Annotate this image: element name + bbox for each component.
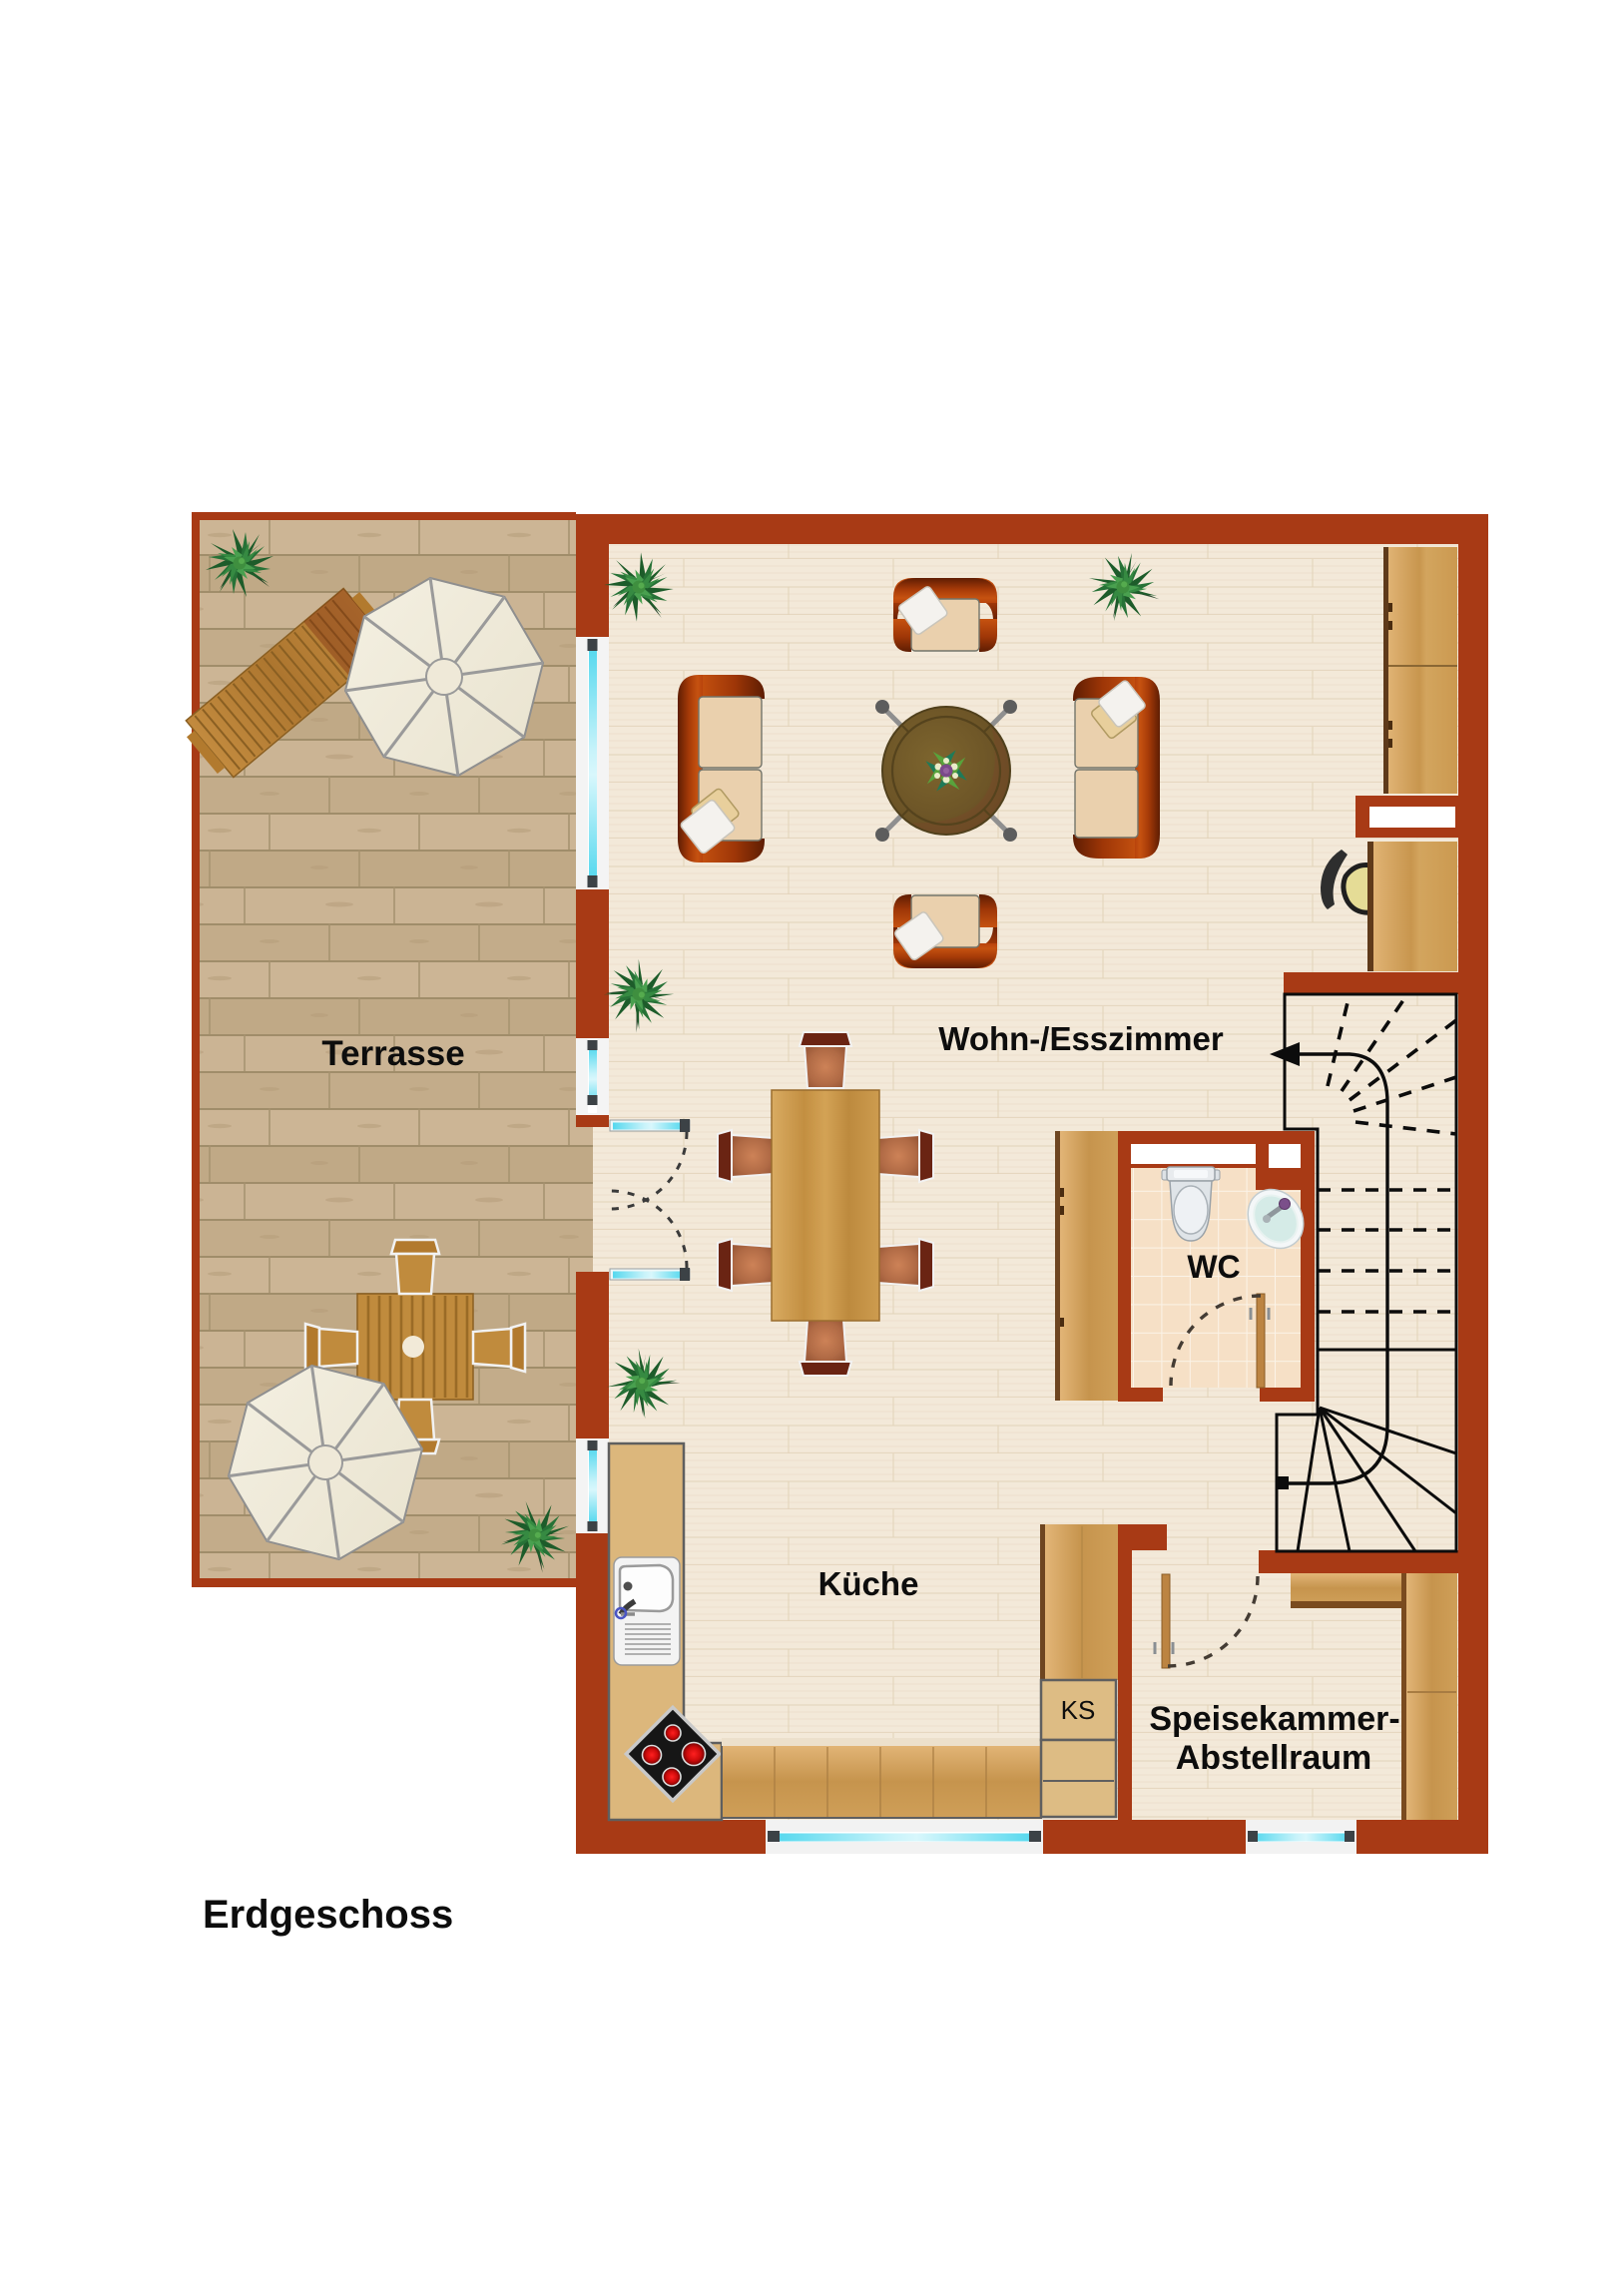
svg-text:Terrasse: Terrasse [321, 1034, 464, 1073]
svg-text:Wohn-/Esszimmer: Wohn-/Esszimmer [938, 1020, 1224, 1057]
svg-text:KS: KS [1061, 1695, 1096, 1725]
svg-text:Speisekammer-: Speisekammer- [1149, 1700, 1399, 1738]
svg-text:Küche: Küche [818, 1565, 919, 1602]
svg-text:Erdgeschoss: Erdgeschoss [203, 1893, 453, 1937]
svg-text:Abstellraum: Abstellraum [1176, 1739, 1372, 1777]
svg-text:WC: WC [1187, 1249, 1240, 1285]
